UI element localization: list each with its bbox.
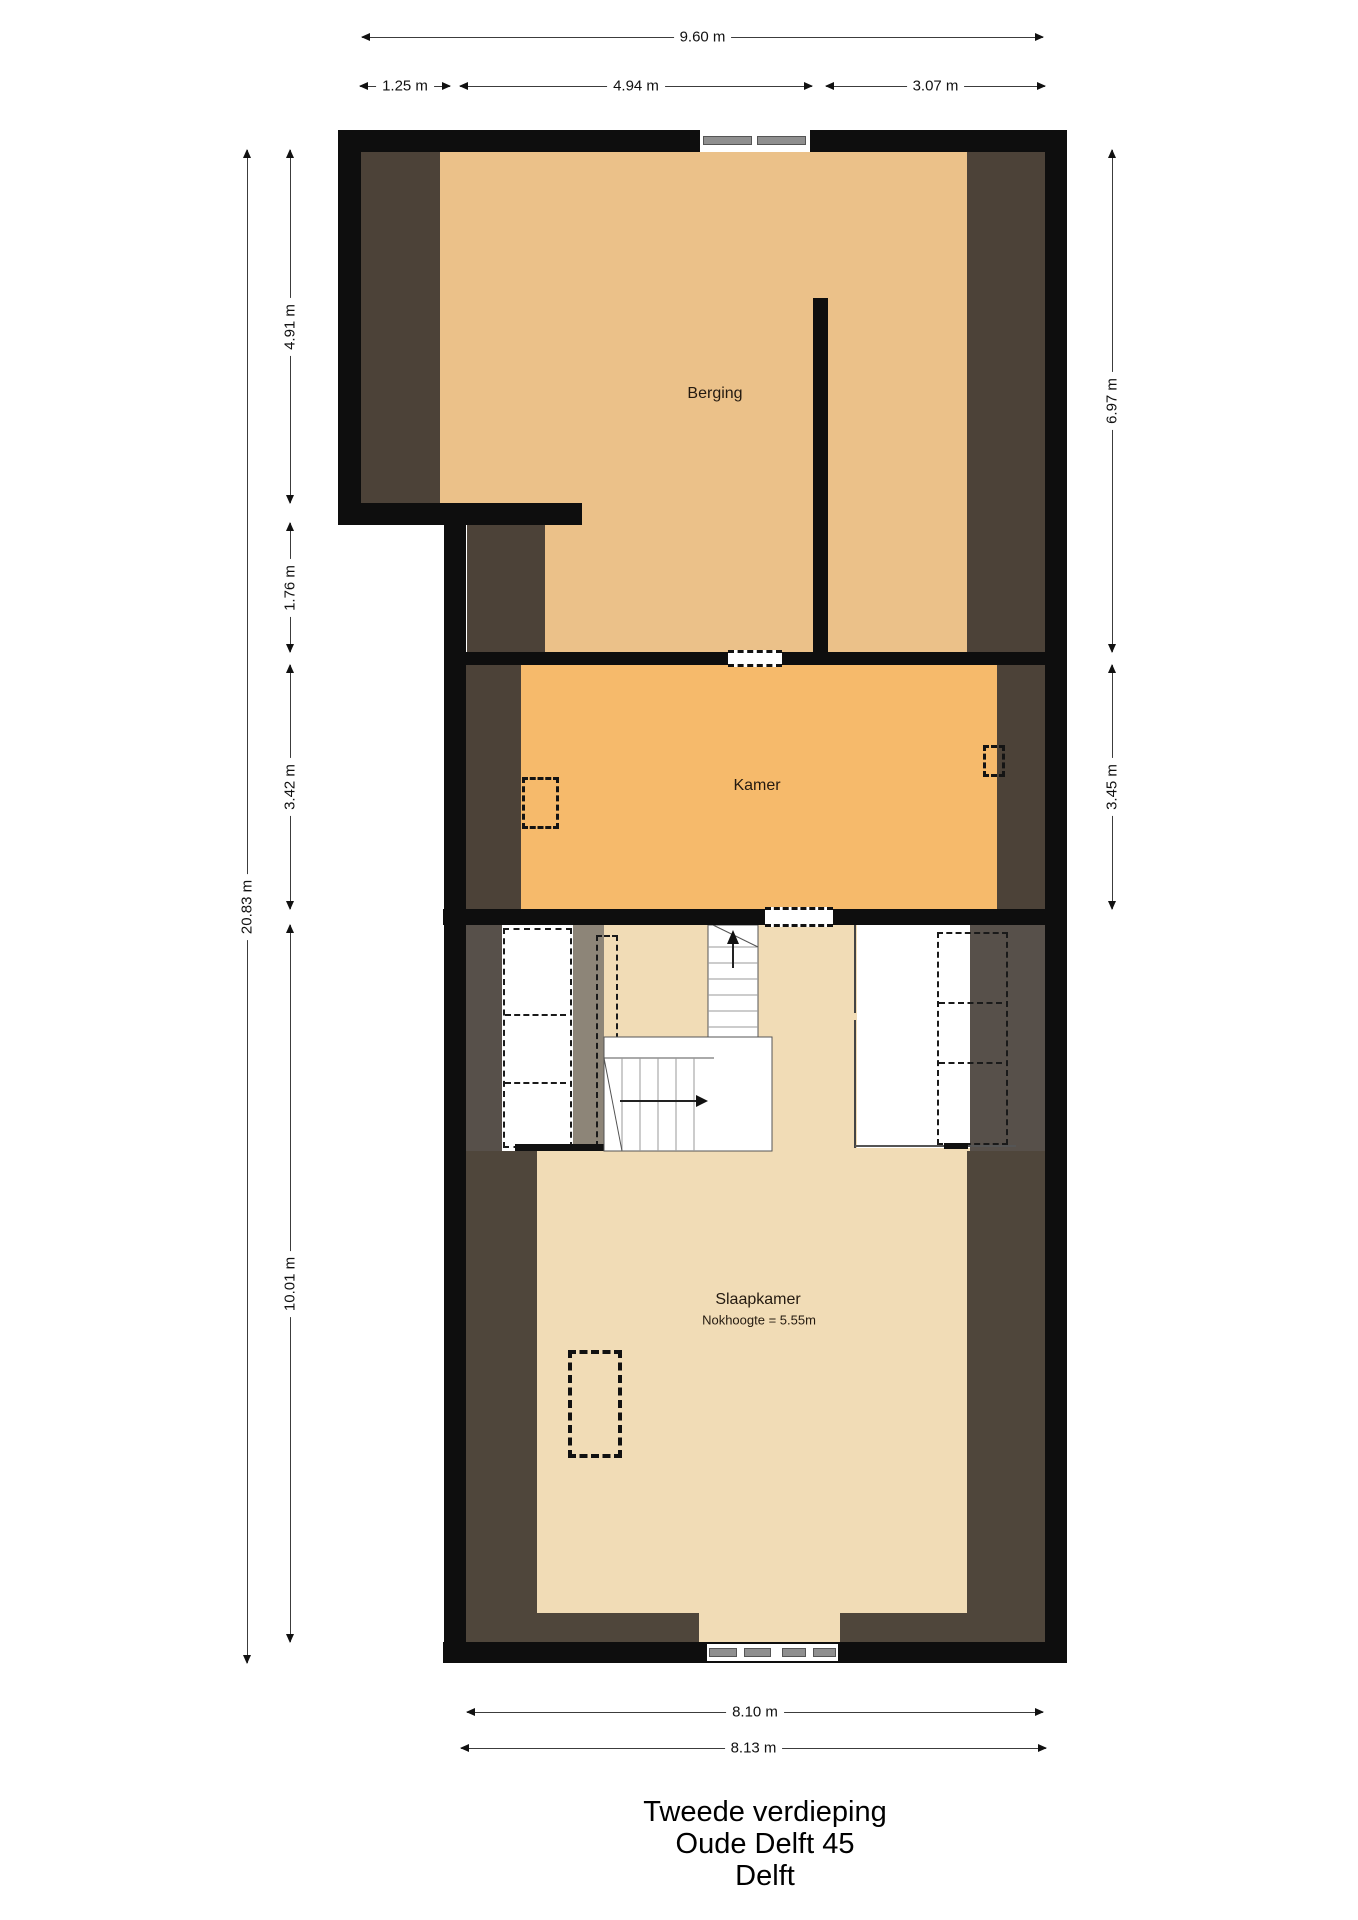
title-line-city: Delft [643, 1860, 886, 1892]
closet-right-bottom-line [855, 1145, 1016, 1147]
dim-left-total-label: 20.83 m [239, 873, 256, 939]
closet-right-edge-lower [854, 1020, 856, 1148]
roof-slope-kamer-left [466, 665, 521, 909]
roof-slope-berging-left [361, 152, 440, 503]
roof-slope-bottom-right [840, 1613, 1045, 1642]
room-note-nokhoogte: Nokhoogte = 5.55m [702, 1313, 816, 1328]
window-bottom-pane-1 [709, 1648, 737, 1657]
dim-top-seg1-label: 1.25 m [376, 78, 434, 95]
room-label-slaapkamer: Slaapkamer [715, 1291, 800, 1309]
roof-slope-kamer-right [997, 665, 1045, 909]
roof-slope-slaap-left [466, 1151, 537, 1642]
room-label-kamer: Kamer [733, 777, 780, 795]
wardrobe-right-shelf-1 [939, 1002, 1002, 1004]
wall-divider-berging [813, 298, 828, 665]
wall-right [1045, 130, 1067, 1663]
title-line-floor: Tweede verdieping [643, 1796, 886, 1828]
window-top-pane-1 [703, 136, 752, 145]
dim-left-seg4-label: 10.01 m [282, 1250, 299, 1316]
title-line-address: Oude Delft 45 [643, 1828, 886, 1860]
closet-right-bottom-dash [944, 1143, 968, 1149]
plan-title: Tweede verdieping Oude Delft 45 Delft [643, 1796, 886, 1892]
dim-bottom-outer-label: 8.13 m [725, 1740, 783, 1757]
roof-slope-stairband-left [466, 925, 502, 1151]
window-bottom-pane-4 [813, 1648, 836, 1657]
dim-bottom-inner-label: 8.10 m [726, 1704, 784, 1721]
window-bottom-pane-2 [744, 1648, 771, 1657]
dim-top-total-label: 9.60 m [674, 29, 732, 46]
window-bottom-pane-3 [782, 1648, 806, 1657]
opening-kamer-top [728, 650, 782, 667]
wardrobe-right-outline [937, 932, 1008, 1145]
berging-floor [361, 152, 1045, 503]
wardrobe-left-shelf-2 [505, 1082, 566, 1084]
wardrobe-right-shelf-2 [939, 1062, 1002, 1064]
dim-top-seg2-label: 4.94 m [607, 78, 665, 95]
berging-floor-lower [467, 525, 1045, 652]
dim-right-seg2-label: 3.45 m [1104, 758, 1121, 816]
wall-kamer-bottom [443, 909, 1067, 925]
roof-slope-berging-right [967, 152, 1045, 652]
wall-left-lower [444, 503, 466, 1663]
wardrobe-left-shelf-1 [505, 1014, 566, 1016]
closet-right-edge-upper [854, 925, 856, 1013]
dim-right-seg1-label: 6.97 m [1104, 372, 1121, 430]
window-bottom [707, 1644, 838, 1661]
closet-left-bottom-bar-1 [515, 1144, 608, 1151]
dim-top-seg3-label: 3.07 m [907, 78, 965, 95]
roof-slope-slaap-right [967, 1151, 1045, 1642]
window-top-pane-2 [757, 136, 806, 145]
opening-kamer-bottom [765, 907, 833, 927]
slaapkamer-dashed-chimney [568, 1350, 622, 1458]
floorplan-page: Berging Kamer Slaapkamer Nokhoogte = 5.5… [0, 0, 1358, 1920]
room-label-berging: Berging [687, 385, 742, 403]
wardrobe-left-outline [503, 928, 572, 1148]
wall-left-upper [338, 130, 361, 523]
kamer-dashed-box-right [983, 745, 1005, 777]
dim-left-seg2-label: 1.76 m [282, 559, 299, 617]
dim-left-seg1-label: 4.91 m [282, 298, 299, 356]
roof-slope-berging-lower-left [467, 525, 545, 652]
kamer-dashed-box-left [522, 777, 559, 829]
window-top [700, 130, 810, 152]
dim-left-seg3-label: 3.42 m [282, 758, 299, 816]
roof-slope-bottom-left [466, 1613, 699, 1642]
stairs [600, 920, 780, 1160]
